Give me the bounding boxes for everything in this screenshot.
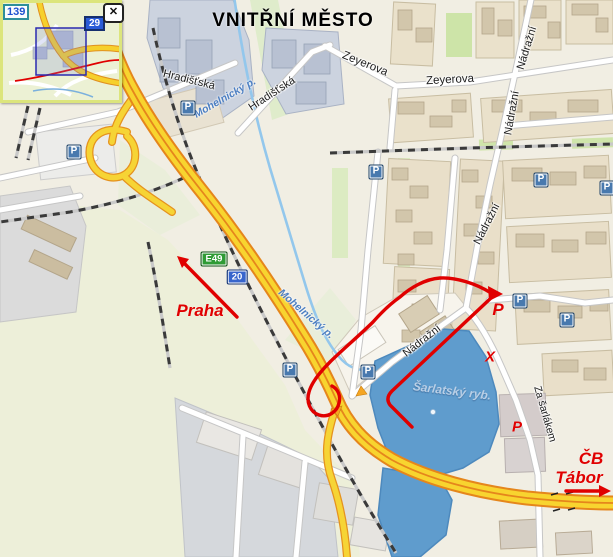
route-loop-path xyxy=(308,278,491,416)
route-arrowhead xyxy=(488,286,503,301)
tabor-arrowhead xyxy=(599,485,611,497)
minimap-close-button[interactable]: ✕ xyxy=(103,3,124,23)
minimap-viewport-rect xyxy=(36,28,86,75)
route-diagonal-path xyxy=(388,298,491,427)
map-canvas[interactable]: VNITŘNÍ MĚSTO HradišťskáHradišťskáZeyero… xyxy=(0,0,613,557)
minimap-badge-29: 29 xyxy=(84,16,105,31)
minimap-badge-139: 139 xyxy=(3,4,29,20)
praha-arrow-line xyxy=(185,264,237,317)
district-title: VNITŘNÍ MĚSTO xyxy=(212,10,374,32)
overview-minimap[interactable]: 139 29 ✕ xyxy=(0,0,122,103)
